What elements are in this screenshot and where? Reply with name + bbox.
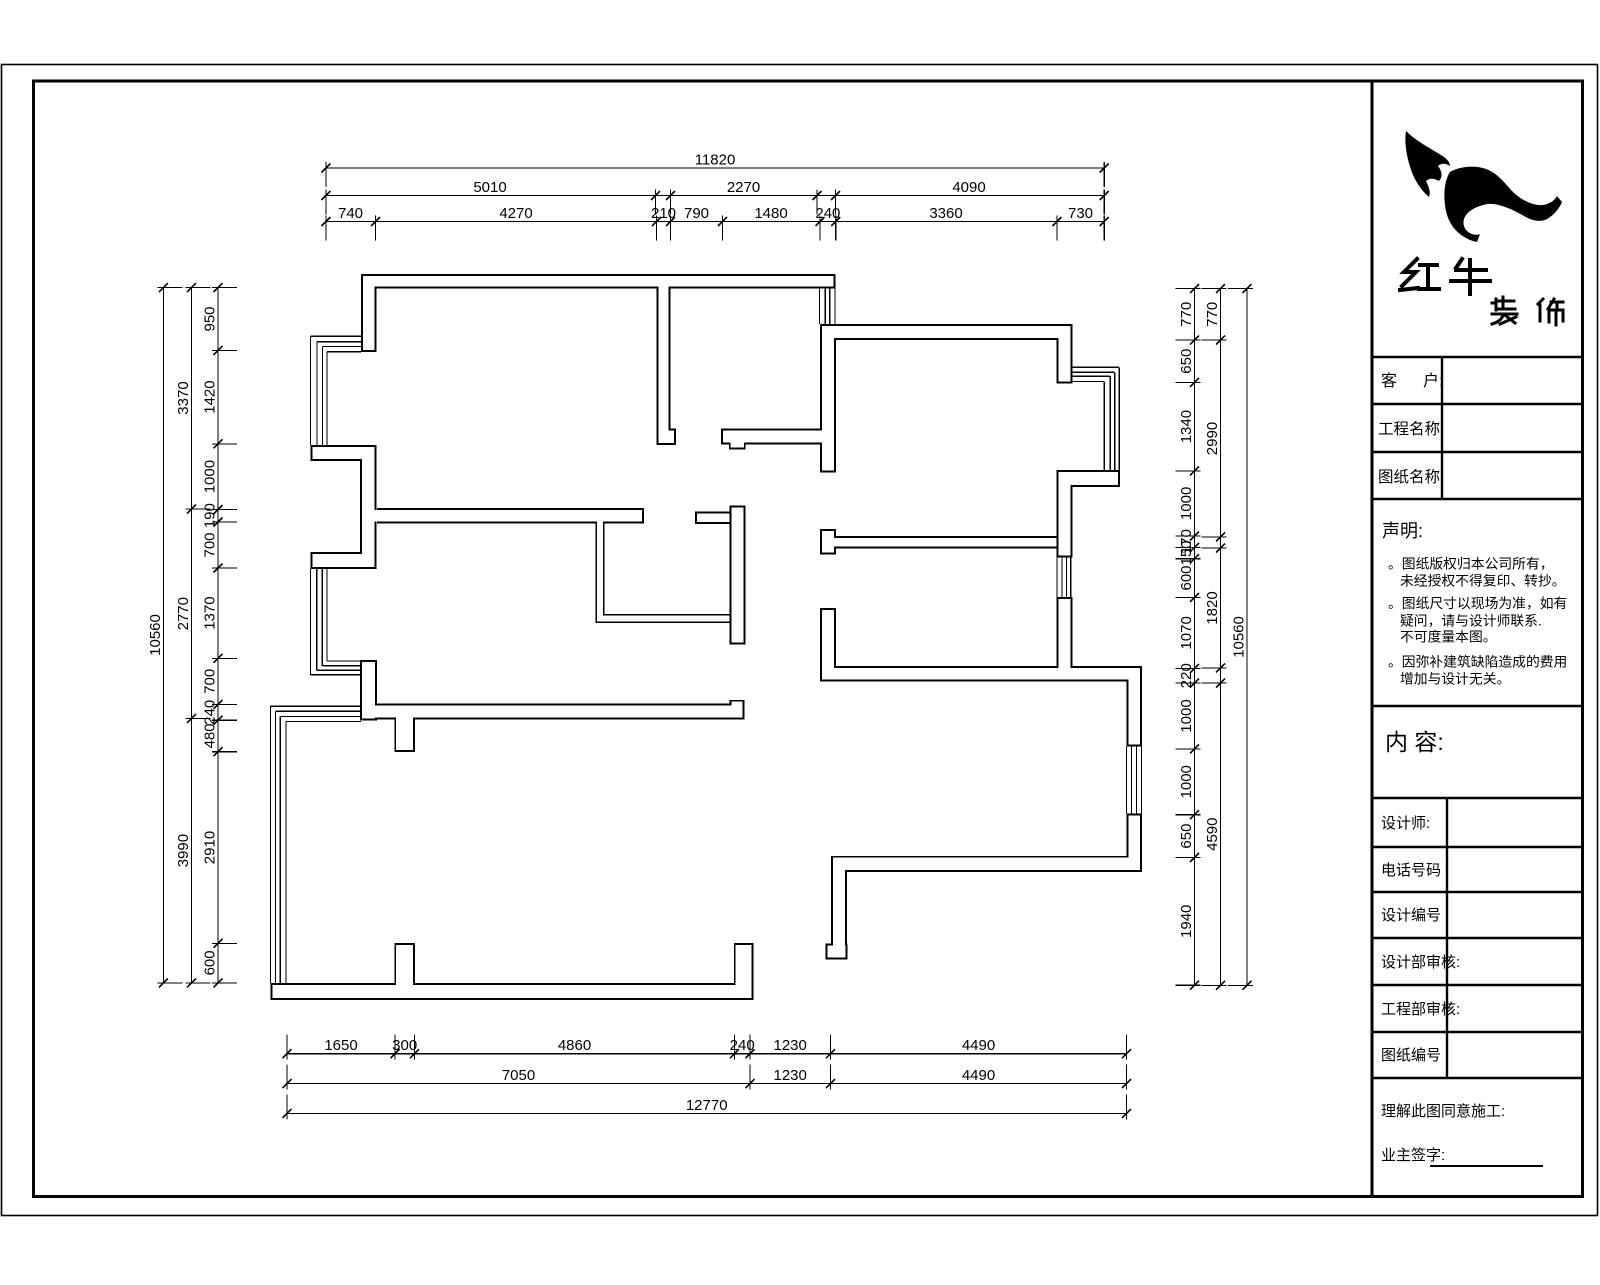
svg-text:2270: 2270 <box>727 179 760 196</box>
svg-text:1070: 1070 <box>1178 616 1195 649</box>
svg-text:4270: 4270 <box>499 205 532 222</box>
svg-text:1370: 1370 <box>202 596 219 629</box>
svg-text:理解此图同意施工:: 理解此图同意施工: <box>1381 1102 1505 1120</box>
svg-text:1480: 1480 <box>754 205 787 222</box>
svg-text:730: 730 <box>1068 205 1093 222</box>
svg-text:2910: 2910 <box>202 831 219 864</box>
svg-text:1230: 1230 <box>774 1037 807 1054</box>
svg-text:700: 700 <box>202 669 219 694</box>
svg-text:户:: 户: <box>1423 372 1443 390</box>
svg-text:650: 650 <box>1178 824 1195 849</box>
svg-text:设计师:: 设计师: <box>1381 815 1430 832</box>
svg-text:480: 480 <box>202 723 219 748</box>
svg-text:1230: 1230 <box>774 1067 807 1084</box>
svg-text:4860: 4860 <box>558 1037 591 1054</box>
svg-text:声明:: 声明: <box>1382 521 1423 541</box>
svg-text:工程名称:: 工程名称: <box>1378 420 1444 438</box>
svg-text:1000: 1000 <box>1178 487 1195 520</box>
svg-text:11820: 11820 <box>695 152 736 169</box>
svg-text:1820: 1820 <box>1204 591 1221 624</box>
svg-text:4490: 4490 <box>962 1067 995 1084</box>
svg-text:疑问，请与设计师联系.: 疑问，请与设计师联系. <box>1400 613 1542 628</box>
svg-text:3360: 3360 <box>929 205 962 222</box>
svg-text:不可度量本图。: 不可度量本图。 <box>1400 629 1497 644</box>
svg-text:。因弥补建筑缺陷造成的费用: 。因弥补建筑缺陷造成的费用 <box>1388 654 1567 670</box>
svg-text:1940: 1940 <box>1178 905 1195 938</box>
svg-text:7050: 7050 <box>502 1067 535 1084</box>
svg-text:10560: 10560 <box>1231 616 1248 658</box>
svg-text:1650: 1650 <box>324 1037 357 1054</box>
svg-text:4490: 4490 <box>962 1037 995 1054</box>
svg-text:未经授权不得复印、转抄。: 未经授权不得复印、转抄。 <box>1400 573 1566 589</box>
svg-text:3990: 3990 <box>175 834 192 867</box>
svg-text:770: 770 <box>1178 302 1195 327</box>
svg-text:内 容:: 内 容: <box>1385 729 1444 755</box>
svg-text:600: 600 <box>1178 565 1195 590</box>
svg-text:1340: 1340 <box>1178 410 1195 443</box>
svg-text:1000: 1000 <box>1178 699 1195 732</box>
svg-text:。图纸尺寸以现场为准，如有: 。图纸尺寸以现场为准，如有 <box>1388 596 1567 611</box>
svg-text:4590: 4590 <box>1204 818 1221 851</box>
svg-text:图纸编号: 图纸编号 <box>1381 1047 1441 1064</box>
svg-text:工程部审核:: 工程部审核: <box>1381 1001 1460 1018</box>
svg-text:740: 740 <box>338 205 363 222</box>
svg-text:2770: 2770 <box>175 597 192 630</box>
svg-text:业主签字:: 业主签字: <box>1381 1147 1445 1164</box>
svg-text:设计编号: 设计编号 <box>1381 907 1441 924</box>
svg-text:3370: 3370 <box>175 381 192 414</box>
svg-text:1000: 1000 <box>202 460 219 493</box>
svg-text:。图纸版权归本公司所有，: 。图纸版权归本公司所有， <box>1388 556 1554 572</box>
svg-text:240: 240 <box>202 700 219 725</box>
svg-text:12770: 12770 <box>686 1097 728 1114</box>
svg-text:增加与设计无关。: 增加与设计无关。 <box>1400 672 1510 687</box>
svg-text:2990: 2990 <box>1204 422 1221 455</box>
svg-text:770: 770 <box>1204 302 1221 327</box>
svg-text:790: 790 <box>684 205 709 222</box>
svg-text:650: 650 <box>1178 349 1195 374</box>
svg-text:600: 600 <box>202 950 219 975</box>
svg-text:客: 客 <box>1381 372 1397 390</box>
svg-text:10560: 10560 <box>147 614 164 656</box>
svg-text:4090: 4090 <box>952 179 985 196</box>
svg-text:700: 700 <box>202 532 219 557</box>
svg-text:设计部审核:: 设计部审核: <box>1381 954 1460 971</box>
svg-text:1000: 1000 <box>1178 765 1195 798</box>
svg-text:1420: 1420 <box>202 380 219 413</box>
svg-text:电话号码: 电话号码 <box>1381 862 1441 879</box>
svg-text:5010: 5010 <box>473 179 506 196</box>
svg-text:图纸名称:: 图纸名称: <box>1378 468 1444 486</box>
svg-text:950: 950 <box>202 306 219 331</box>
